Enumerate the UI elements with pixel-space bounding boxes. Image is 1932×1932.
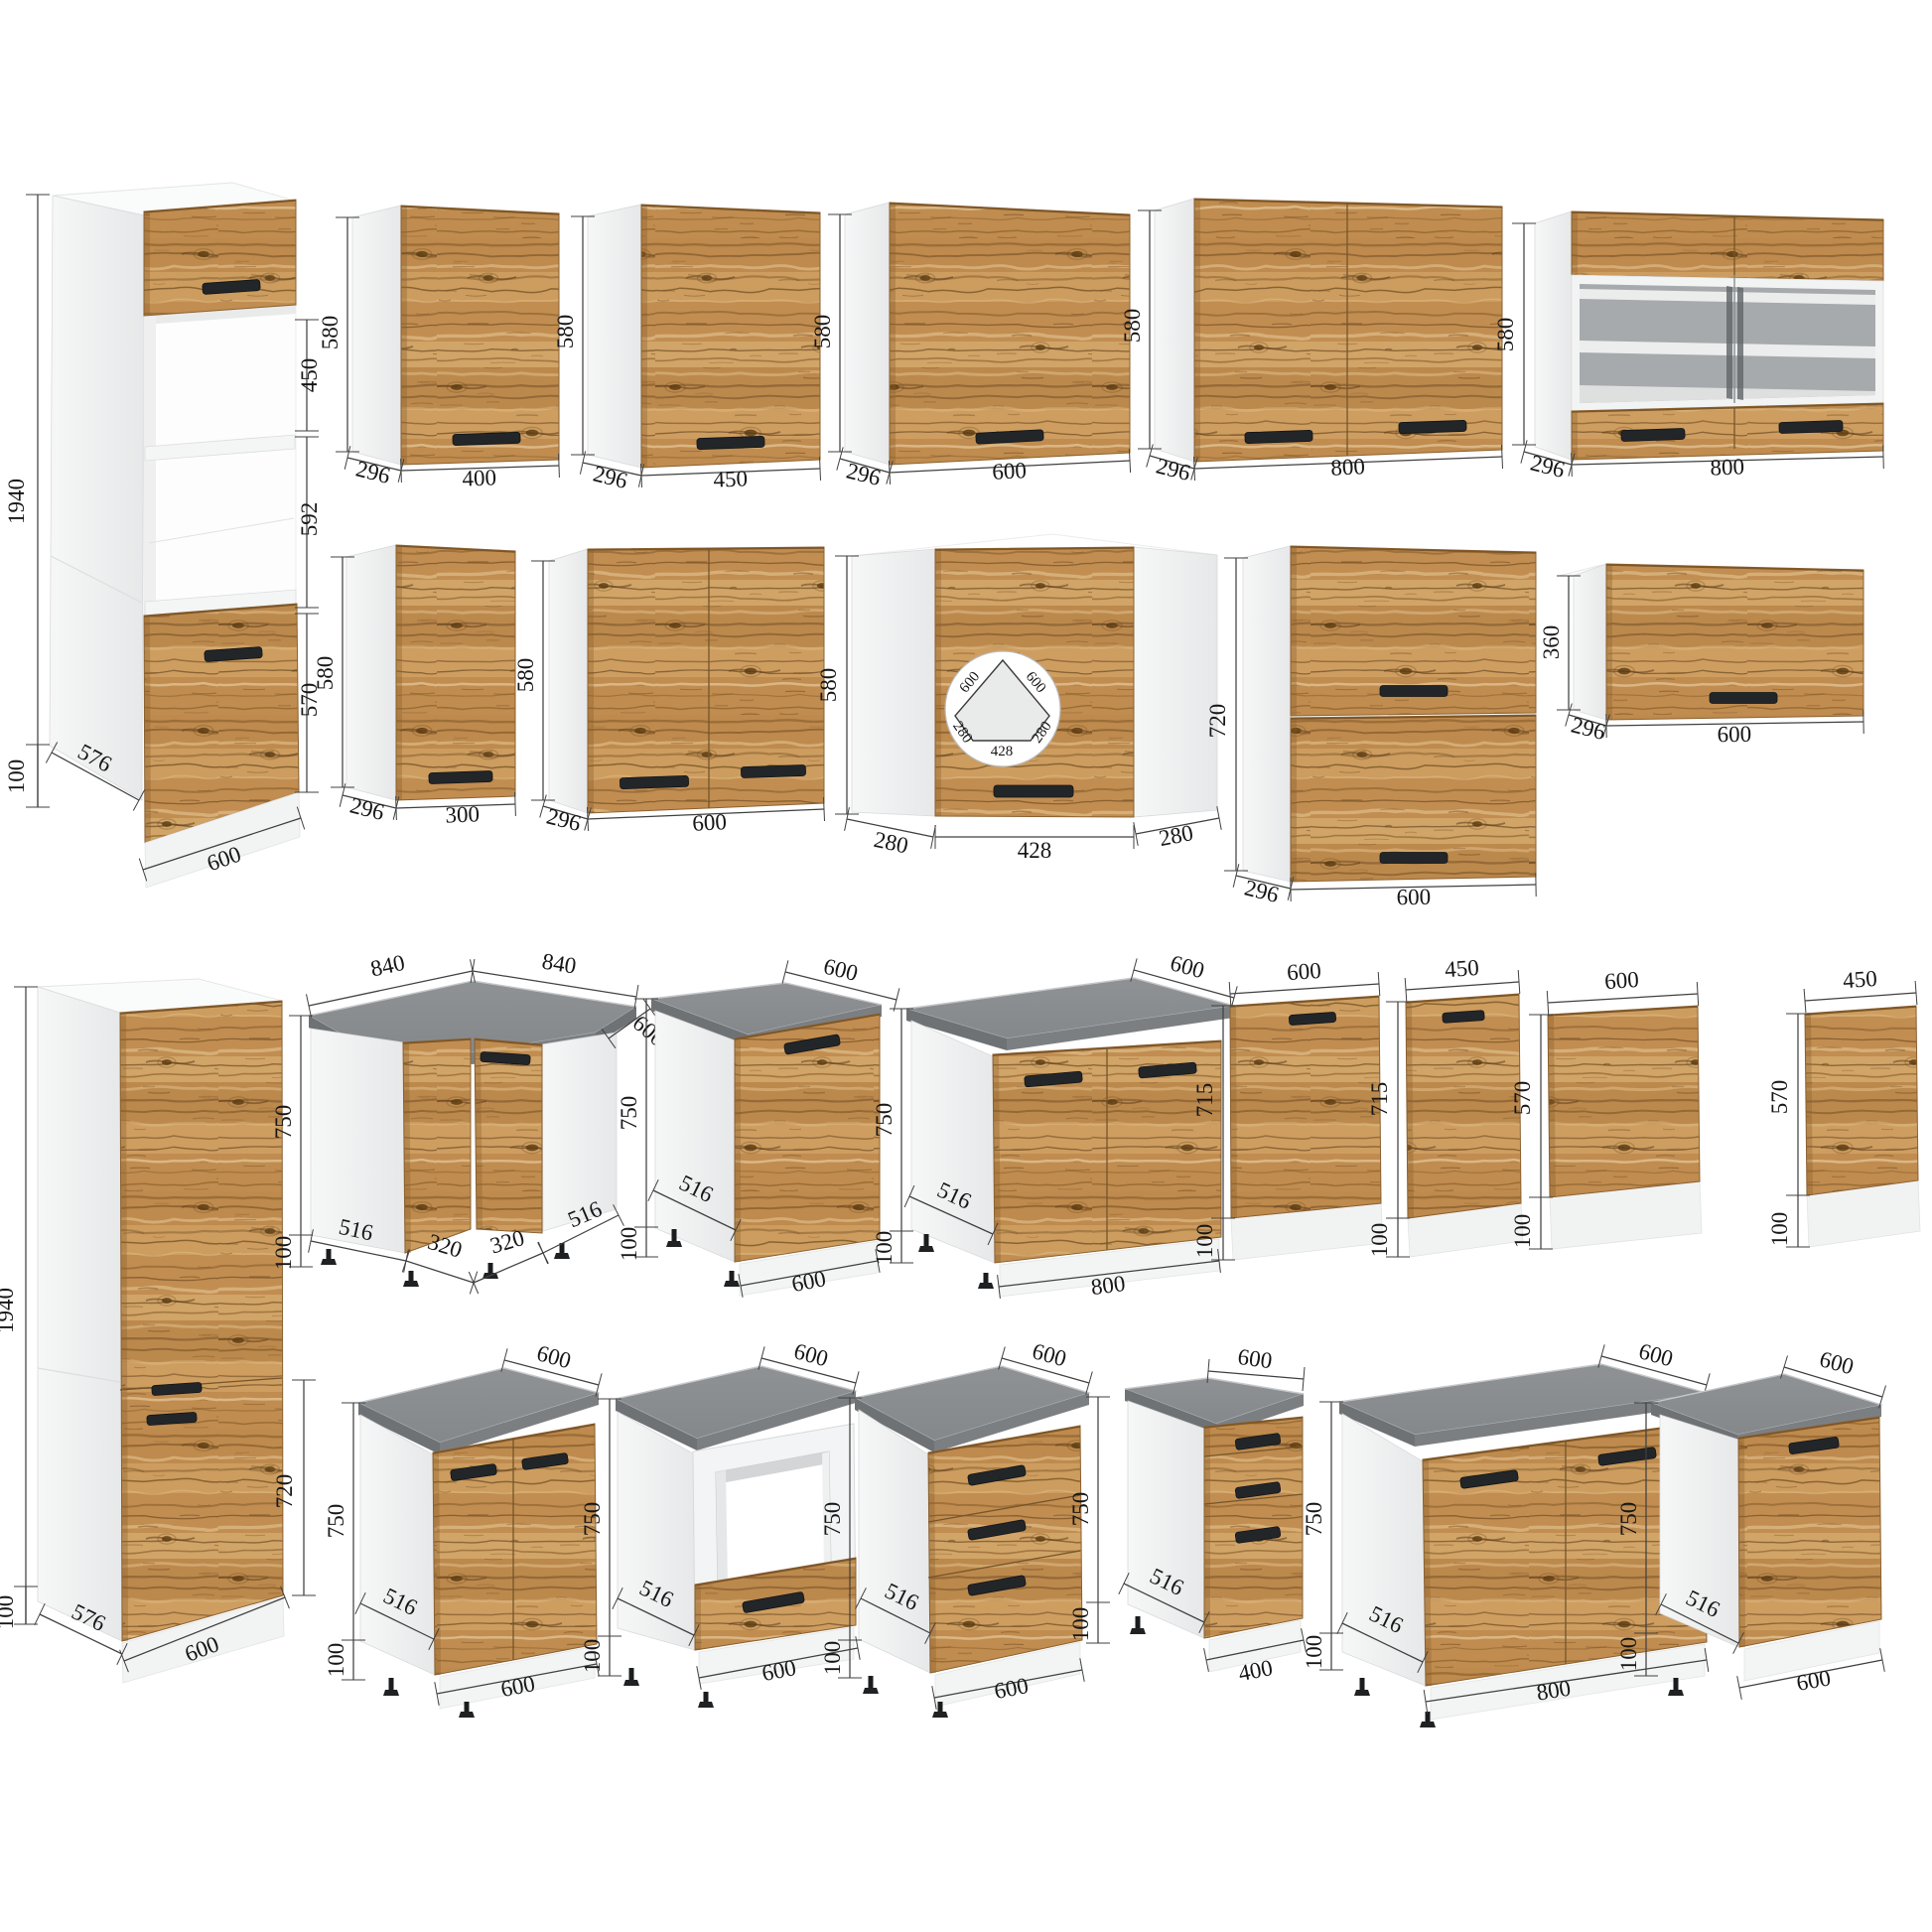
svg-text:750: 750: [617, 1096, 641, 1131]
svg-text:720: 720: [1205, 704, 1230, 739]
svg-text:720: 720: [272, 1474, 297, 1509]
svg-text:600: 600: [1396, 885, 1431, 910]
svg-text:100: 100: [324, 1643, 348, 1678]
svg-text:580: 580: [318, 316, 343, 350]
svg-text:100: 100: [1192, 1224, 1217, 1259]
svg-text:450: 450: [297, 358, 322, 393]
svg-text:100: 100: [1367, 1223, 1392, 1258]
svg-text:428: 428: [1018, 838, 1052, 863]
svg-text:750: 750: [1302, 1502, 1326, 1537]
svg-text:715: 715: [1192, 1083, 1217, 1118]
svg-text:750: 750: [271, 1105, 296, 1140]
svg-text:750: 750: [324, 1504, 348, 1539]
svg-text:570: 570: [1510, 1081, 1535, 1116]
svg-text:360: 360: [1539, 625, 1564, 660]
svg-text:400: 400: [462, 465, 496, 490]
svg-text:100: 100: [580, 1639, 605, 1674]
svg-text:715: 715: [1367, 1082, 1392, 1117]
svg-text:800: 800: [1535, 1676, 1573, 1706]
svg-text:600: 600: [1236, 1344, 1274, 1374]
svg-text:580: 580: [1493, 318, 1518, 352]
svg-text:450: 450: [1842, 966, 1877, 993]
svg-text:100: 100: [4, 759, 29, 794]
svg-text:100: 100: [1302, 1635, 1326, 1670]
svg-text:100: 100: [1767, 1212, 1792, 1247]
svg-text:580: 580: [313, 656, 338, 691]
svg-text:100: 100: [0, 1595, 18, 1630]
svg-text:592: 592: [297, 502, 322, 537]
svg-text:100: 100: [1068, 1607, 1093, 1642]
svg-text:800: 800: [1089, 1271, 1126, 1300]
svg-text:1940: 1940: [0, 1288, 18, 1333]
svg-text:750: 750: [580, 1502, 605, 1537]
svg-text:800: 800: [1710, 454, 1744, 480]
svg-text:100: 100: [872, 1231, 897, 1266]
svg-text:580: 580: [816, 668, 841, 703]
svg-text:750: 750: [1068, 1492, 1093, 1527]
svg-text:100: 100: [617, 1227, 641, 1262]
svg-text:840: 840: [540, 949, 578, 979]
svg-text:450: 450: [1444, 955, 1479, 982]
svg-text:1940: 1940: [4, 479, 29, 524]
svg-text:600: 600: [992, 458, 1028, 484]
svg-text:750: 750: [820, 1502, 845, 1537]
svg-text:750: 750: [872, 1103, 897, 1138]
svg-text:428: 428: [991, 744, 1014, 759]
svg-text:800: 800: [1330, 454, 1366, 481]
svg-text:100: 100: [1510, 1214, 1535, 1249]
svg-text:100: 100: [1616, 1637, 1641, 1672]
svg-text:600: 600: [1717, 722, 1751, 748]
svg-text:580: 580: [513, 658, 538, 693]
svg-text:600: 600: [1286, 958, 1321, 985]
svg-text:580: 580: [553, 315, 578, 349]
svg-text:570: 570: [1767, 1080, 1792, 1115]
svg-text:600: 600: [692, 809, 728, 836]
svg-text:100: 100: [271, 1236, 296, 1271]
svg-text:450: 450: [713, 466, 748, 491]
svg-text:300: 300: [445, 801, 480, 827]
svg-text:580: 580: [1120, 309, 1145, 344]
svg-text:600: 600: [1603, 967, 1639, 994]
svg-text:580: 580: [810, 315, 835, 349]
svg-text:750: 750: [1616, 1502, 1641, 1537]
svg-text:100: 100: [820, 1641, 845, 1676]
